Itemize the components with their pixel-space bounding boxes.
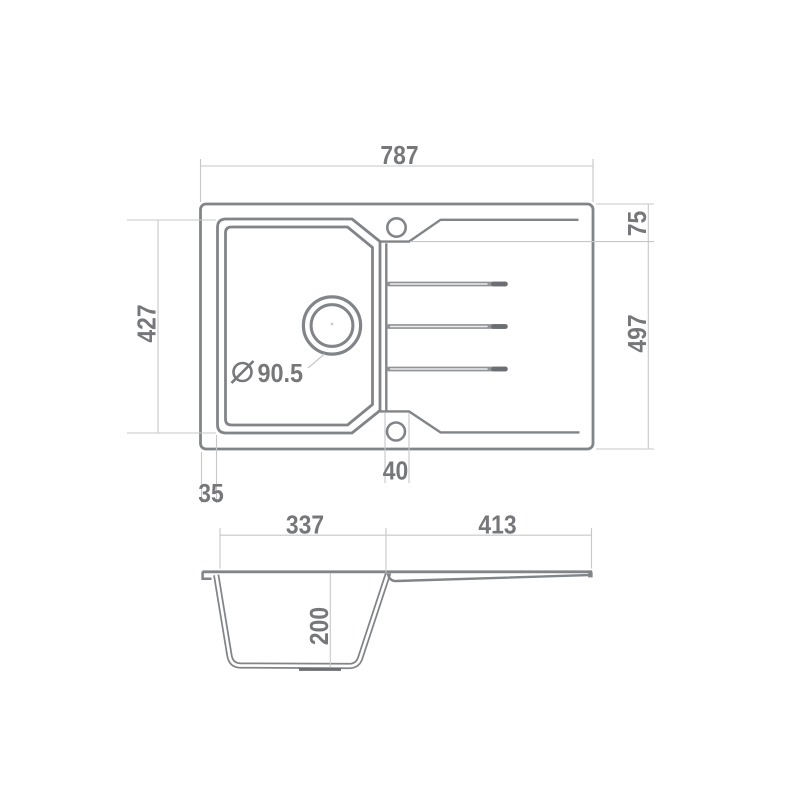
dim-label-drain-diameter: 90.5 <box>258 360 304 388</box>
dim-label-bowl-length: 427 <box>133 304 162 342</box>
drawing-canvas: 787 75 497 427 35 40 90.5 <box>0 0 800 800</box>
top-view <box>201 204 594 449</box>
drain-leader-line <box>308 354 325 368</box>
drain-inner-ring <box>311 305 353 347</box>
dim-label-overall-depth: 497 <box>624 314 653 352</box>
bowl-outer-contour <box>218 219 381 433</box>
diameter-icon <box>232 361 254 383</box>
side-view-dimensions: 337 413 200 <box>220 511 592 667</box>
dim-label-bowl-depth: 200 <box>306 607 335 645</box>
recess-bottom-contour <box>380 411 580 432</box>
drainboard-grooves <box>389 284 506 369</box>
recess-top-contour <box>380 220 579 242</box>
dim-label-drainboard-width: 413 <box>478 511 516 540</box>
drain-center-mark <box>331 323 334 326</box>
side-section-view <box>202 572 592 670</box>
tap-hole-top <box>387 218 405 236</box>
drainboard-underside <box>388 574 589 582</box>
dim-label-overall-width: 787 <box>380 142 418 171</box>
dim-label-tap-hole-offset: 40 <box>383 457 408 486</box>
bowl-inner-contour <box>226 227 373 425</box>
drain-opening <box>303 297 360 354</box>
dim-label-bowl-width: 337 <box>286 511 324 540</box>
sink-technical-drawing: 787 75 497 427 35 40 90.5 <box>0 0 800 800</box>
dim-label-bowl-edge-offset: 35 <box>198 480 223 509</box>
dim-label-rim-to-recess: 75 <box>624 211 653 236</box>
bowl-section-shell-core <box>216 573 388 666</box>
tap-hole-bottom <box>387 423 405 441</box>
